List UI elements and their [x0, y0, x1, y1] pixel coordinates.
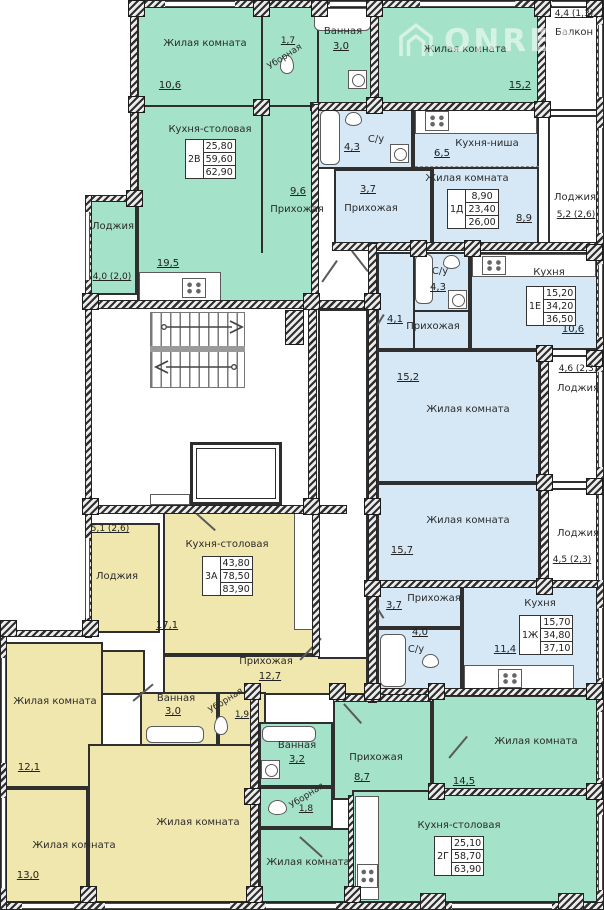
- room-area: 3,2: [289, 754, 305, 766]
- washing-machine: [348, 70, 367, 89]
- door: [321, 260, 337, 282]
- room-area: 3,0: [165, 706, 181, 718]
- room-area: 3,0: [333, 41, 349, 53]
- window: [598, 265, 603, 337]
- window: [598, 128, 603, 233]
- room-3a-hall-b: [100, 650, 145, 695]
- room-label: Прихожая: [239, 656, 293, 668]
- room-label: Кухня-столовая: [168, 124, 251, 136]
- window: [552, 1, 586, 7]
- room-label: С/у: [368, 134, 384, 146]
- column: [253, 0, 270, 17]
- elevator-shaft-corridor: [318, 309, 368, 659]
- column: [126, 190, 143, 207]
- apartment-table-2g: 2Г 25,10 58,70 63,90: [434, 836, 484, 876]
- column: [586, 478, 603, 495]
- room-area: 6,5: [434, 148, 450, 160]
- column: [0, 620, 17, 637]
- window: [1, 658, 6, 763]
- room-area: 1,9: [235, 710, 249, 720]
- room-label: Кухня: [533, 267, 565, 279]
- room-label: Жилая комната: [423, 44, 506, 56]
- apartment-id: 2Г: [435, 837, 452, 876]
- apartment-id: 2В: [186, 140, 204, 179]
- entry-porch-wall: [558, 893, 584, 910]
- column: [364, 293, 381, 310]
- column: [410, 240, 427, 257]
- column: [82, 293, 99, 310]
- room-area: 8,9: [516, 213, 532, 225]
- window: [165, 1, 235, 7]
- total-area: 83,90: [220, 583, 252, 596]
- bathtub: [146, 726, 204, 743]
- window: [598, 815, 603, 890]
- room-1d-loggia: [548, 115, 599, 248]
- column: [253, 99, 270, 116]
- apartment-table-3a: 3А 43,80 78,50 83,90: [202, 556, 253, 596]
- flat-area: 58,70: [452, 850, 484, 863]
- column: [536, 345, 553, 362]
- stair-up-arrow: [158, 320, 246, 334]
- room-area: 4,3: [344, 142, 360, 154]
- column: [366, 0, 383, 17]
- living-area: 15,20: [544, 287, 576, 300]
- stove: [357, 864, 378, 888]
- wall: [333, 694, 433, 702]
- bathtub: [320, 110, 340, 165]
- room-label: Лоджия: [96, 571, 138, 583]
- flat-area: 78,50: [220, 570, 252, 583]
- room-label: Ванная: [324, 26, 362, 38]
- column: [366, 97, 383, 114]
- room-1e-hall-a: [377, 252, 415, 350]
- wall: [368, 243, 377, 703]
- column: [428, 783, 445, 800]
- room-area: 4,4 (1,3): [555, 9, 594, 19]
- bathtub: [415, 254, 433, 304]
- washing-machine: [261, 760, 280, 779]
- room-label: Жилая комната: [266, 857, 349, 869]
- room-1zh-living: [377, 483, 540, 585]
- flat-area: 34,20: [544, 300, 576, 313]
- toilet: [268, 800, 287, 815]
- partition: [261, 107, 263, 253]
- stove: [498, 669, 522, 688]
- window: [330, 1, 366, 7]
- room-label: Ванная: [157, 693, 195, 705]
- column: [364, 580, 381, 597]
- apartment-table-2v: 2В 25,80 59,60 62,90: [185, 139, 236, 179]
- apartment-id: 1Е: [527, 287, 544, 326]
- room-label: Лоджия: [557, 528, 599, 540]
- total-area: 62,90: [203, 166, 235, 179]
- room-area: 12,1: [18, 762, 40, 774]
- flat-area: 34,80: [541, 629, 573, 642]
- living-area: 25,10: [452, 837, 484, 850]
- floor-plan: Жилая комната 10,6 1,7 Уборная Ванная 3,…: [0, 0, 604, 910]
- room-label: Жилая комната: [156, 817, 239, 829]
- stair-low-wall: [150, 494, 190, 505]
- column: [244, 788, 261, 805]
- room-label: Жилая комната: [163, 38, 246, 50]
- entry-porch-wall: [420, 893, 446, 910]
- washing-machine: [448, 290, 467, 309]
- room-label: Жилая комната: [425, 173, 508, 185]
- room-label: Кухня: [524, 598, 556, 610]
- room-label: С/у: [432, 266, 448, 278]
- room-area: 4,5 (2,3): [553, 555, 592, 565]
- room-area: 19,5: [157, 258, 179, 270]
- wall: [432, 788, 598, 796]
- room-area: 15,7: [391, 545, 413, 557]
- room-area: 13,0: [17, 870, 39, 882]
- room-area: 8,7: [354, 772, 370, 784]
- column: [586, 783, 603, 800]
- room-area: 14,5: [453, 776, 475, 788]
- window: [598, 712, 603, 778]
- room-2v-balcony: [541, 4, 599, 111]
- apartment-id: 1Д: [448, 190, 466, 229]
- room-label: Жилая комната: [426, 515, 509, 527]
- room-area: 4,1: [387, 314, 403, 326]
- living-area: 43,80: [220, 557, 252, 570]
- entry-door-opening: [452, 903, 552, 909]
- room-label: С/у: [408, 644, 424, 656]
- column: [80, 886, 97, 903]
- column: [82, 498, 99, 515]
- window: [85, 538, 90, 618]
- window: [105, 903, 230, 909]
- room-label: Кухня-столовая: [185, 539, 268, 551]
- window: [598, 608, 603, 678]
- column: [534, 0, 551, 17]
- room-label: Жилая комната: [13, 696, 96, 708]
- column: [534, 101, 551, 118]
- column: [536, 578, 553, 595]
- room-label: Прихожая: [406, 321, 460, 333]
- column: [428, 683, 445, 700]
- room-area: 12,7: [259, 671, 281, 683]
- room-area: 10,6: [159, 80, 181, 92]
- room-2v-living2: [375, 4, 539, 108]
- column: [364, 683, 381, 700]
- room-label: Прихожая: [407, 593, 461, 605]
- window: [22, 903, 74, 909]
- room-label: Прихожая: [349, 752, 403, 764]
- room-area: 4,0 (2,0): [93, 272, 132, 282]
- room-label: Прихожая: [270, 204, 324, 216]
- apartment-table-1d: 1Д 8,90 23,40 26,00: [447, 189, 499, 229]
- column: [586, 683, 603, 700]
- column: [364, 498, 381, 515]
- room-area: 3,7: [386, 600, 402, 612]
- room-label: Жилая комната: [32, 840, 115, 852]
- room-area: 17,1: [156, 620, 178, 632]
- apartment-table-1zh: 1Ж 15,70 34,80 37,10: [519, 615, 573, 655]
- window: [420, 1, 515, 7]
- stove: [425, 111, 449, 131]
- column: [464, 240, 481, 257]
- room-label: Лоджия: [554, 192, 596, 204]
- kitchen-niche-dashed-line: [415, 166, 539, 167]
- wall: [537, 4, 546, 110]
- room-label: Жилая комната: [494, 736, 577, 748]
- wall: [85, 300, 378, 309]
- wall: [377, 580, 598, 588]
- room-2g-hall: [333, 700, 432, 800]
- room-area: 5,1 (2,6): [91, 524, 130, 534]
- room-area: 5,2 (2,6): [557, 210, 596, 220]
- column: [311, 0, 328, 17]
- room-area: 9,6: [290, 186, 306, 198]
- window: [598, 25, 603, 97]
- door: [351, 250, 368, 272]
- total-area: 26,00: [466, 216, 498, 229]
- room-label: Прихожая: [344, 203, 398, 215]
- column: [536, 474, 553, 491]
- room-area: 11,4: [494, 644, 516, 656]
- window: [85, 212, 90, 280]
- staircase-landing: [150, 346, 245, 352]
- room-label: Лоджия: [557, 383, 599, 395]
- room-area: 3,7: [360, 184, 376, 196]
- apartment-id: 1Ж: [520, 616, 541, 655]
- apartment-id: 3А: [203, 557, 221, 596]
- column: [303, 293, 320, 310]
- column: [303, 498, 320, 515]
- column: [344, 886, 361, 903]
- room-area: 15,2: [397, 372, 419, 384]
- room-area: 1,8: [299, 804, 313, 814]
- living-area: 15,70: [541, 616, 573, 629]
- column: [329, 683, 346, 700]
- toilet: [345, 112, 362, 126]
- total-area: 37,10: [541, 642, 573, 655]
- column: [82, 620, 99, 637]
- living-area: 8,90: [466, 190, 498, 203]
- wall: [308, 300, 317, 514]
- bathtub: [380, 634, 406, 687]
- room-label: Лоджия: [92, 221, 134, 233]
- column: [128, 96, 145, 113]
- washing-machine: [390, 144, 409, 163]
- partition: [261, 6, 263, 105]
- room-area: 15,2: [509, 80, 531, 92]
- wall: [312, 505, 320, 657]
- elevator: [190, 442, 282, 505]
- stove: [482, 256, 506, 275]
- stove: [182, 278, 206, 298]
- room-label: Кухня-ниша: [455, 138, 518, 150]
- room-label: Балкон: [555, 27, 593, 39]
- total-area: 63,90: [452, 863, 484, 876]
- column: [246, 886, 263, 903]
- window: [1, 798, 6, 888]
- apartment-table-1e: 1Е 15,20 34,20 36,50: [526, 286, 576, 326]
- room-1e-living: [377, 350, 540, 483]
- toilet: [214, 716, 228, 735]
- room-area: 4,6 (2,3): [559, 364, 598, 374]
- total-area: 36,50: [544, 313, 576, 326]
- room-label: Ванная: [278, 740, 316, 752]
- toilet: [422, 654, 439, 668]
- window: [266, 903, 336, 909]
- flat-area: 23,40: [466, 203, 498, 216]
- stair-down-arrow: [152, 360, 240, 374]
- living-area: 25,80: [203, 140, 235, 153]
- column: [244, 683, 261, 700]
- wall: [310, 102, 550, 111]
- room-area: 4,0: [412, 627, 428, 639]
- room-label: Кухня-столовая: [417, 820, 500, 832]
- room-label: Жилая комната: [426, 404, 509, 416]
- room-area: 4,3: [430, 282, 446, 294]
- trash-chute: [285, 310, 304, 345]
- column: [128, 0, 145, 17]
- flat-area: 59,60: [203, 153, 235, 166]
- wall: [540, 347, 549, 590]
- column: [586, 244, 603, 261]
- elevator-cab: [196, 448, 276, 499]
